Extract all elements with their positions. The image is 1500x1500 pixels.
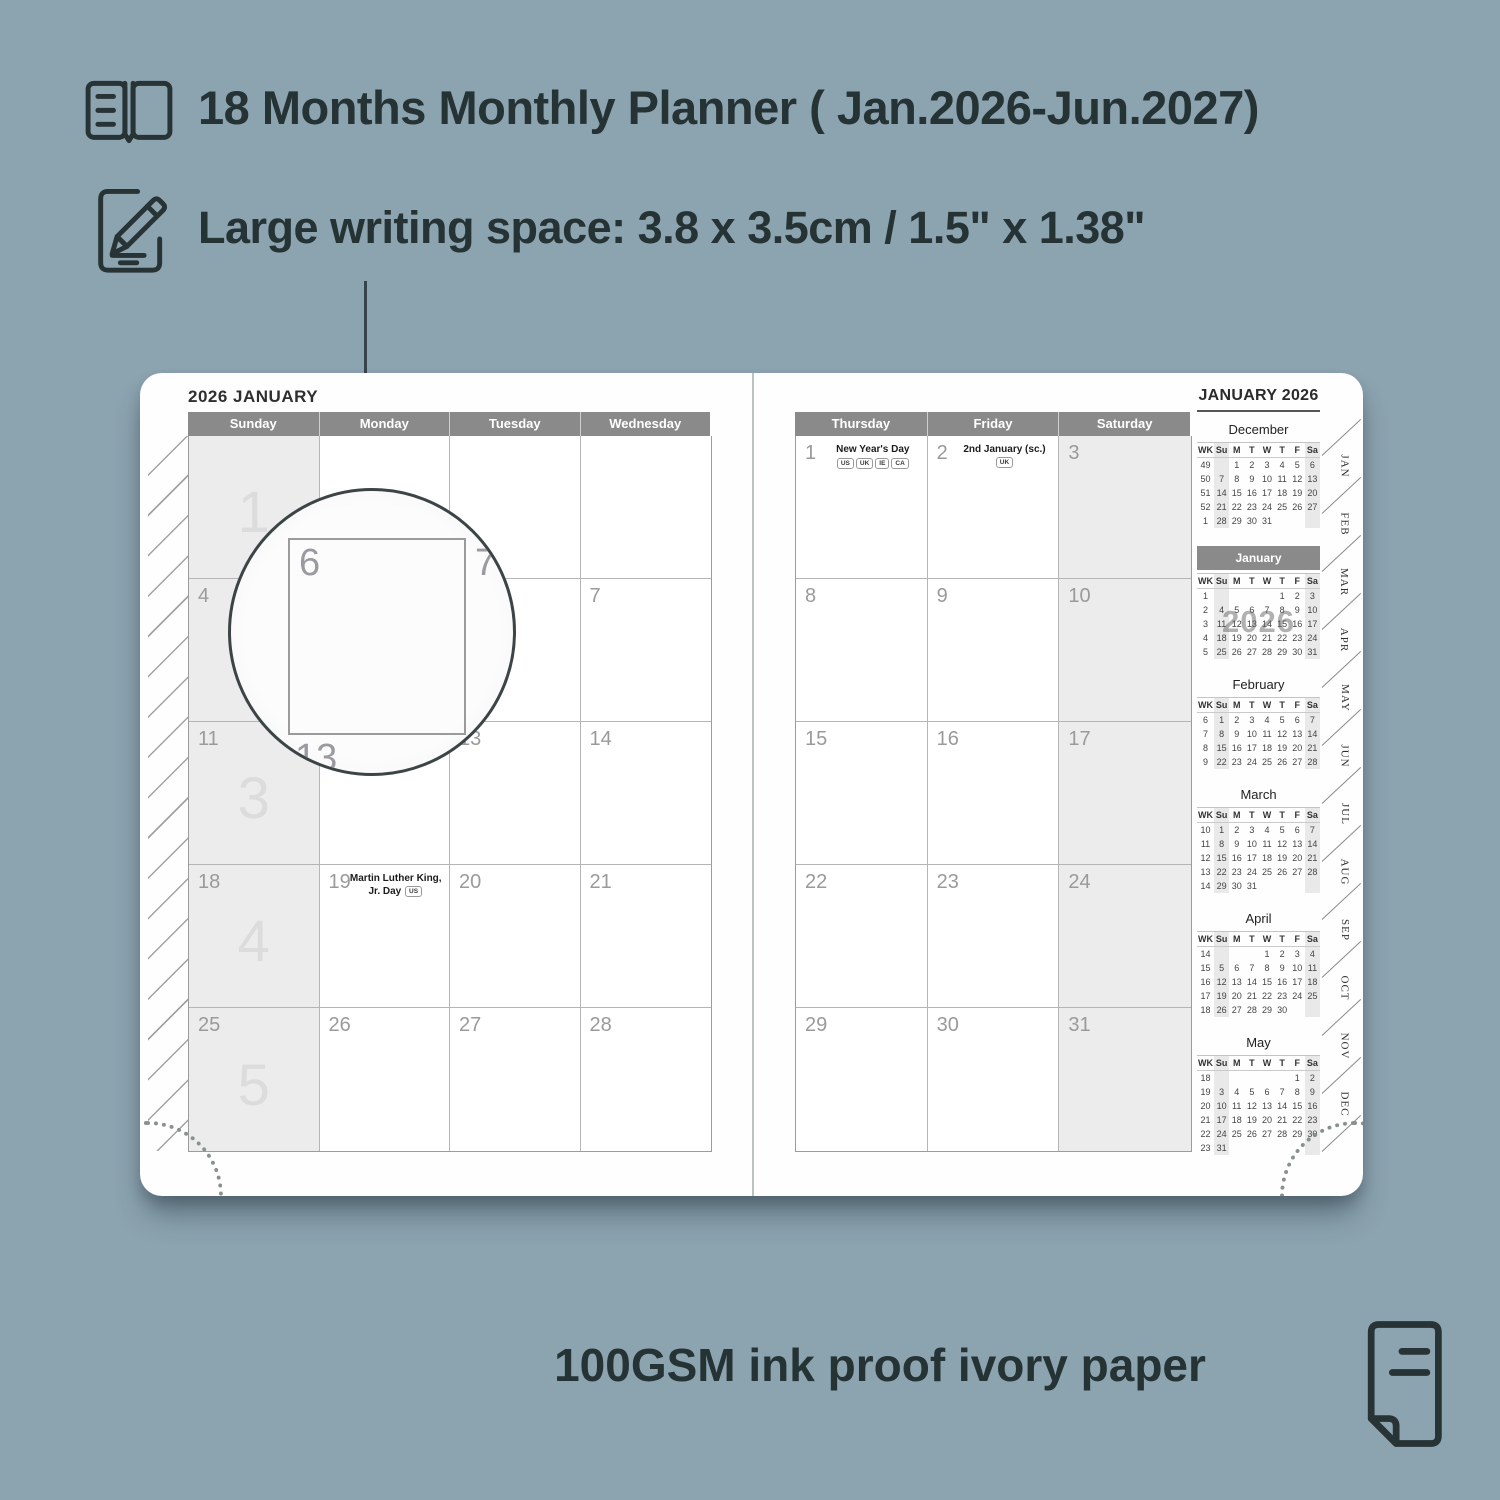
paper-sheet-icon bbox=[1352, 1316, 1448, 1452]
mini-date: 10 bbox=[1244, 727, 1259, 741]
mini-week-row: 2010111213141516 bbox=[1197, 1099, 1320, 1113]
mini-week-number: 9 bbox=[1197, 755, 1214, 769]
mini-date: 24 bbox=[1290, 989, 1305, 1003]
mini-date: 26 bbox=[1275, 865, 1290, 879]
mini-date: 7 bbox=[1305, 823, 1320, 837]
calendar-cell: 3 bbox=[1059, 436, 1191, 579]
mini-date: 29 bbox=[1229, 514, 1244, 528]
mini-weekday: F bbox=[1290, 932, 1305, 946]
mini-date bbox=[1259, 1141, 1274, 1155]
mini-week-number: 52 bbox=[1197, 500, 1214, 514]
mini-week-row: 141234 bbox=[1197, 947, 1320, 961]
mini-date: 16 bbox=[1229, 741, 1244, 755]
paper-fold bbox=[1371, 1419, 1396, 1444]
mini-date: 13 bbox=[1305, 472, 1320, 486]
holiday-badge-row: USUKIECA bbox=[823, 457, 923, 470]
holiday-label: New Year's DayUSUKIECA bbox=[823, 443, 923, 470]
mini-date: 7 bbox=[1244, 961, 1259, 975]
calendar-cell: 14 bbox=[581, 722, 712, 865]
mini-date: 28 bbox=[1305, 755, 1320, 769]
mini-date: 18 bbox=[1305, 975, 1320, 989]
calendar-cell: 20 bbox=[450, 865, 581, 1008]
mini-date: 10 bbox=[1290, 961, 1305, 975]
mini-date: 20 bbox=[1290, 741, 1305, 755]
mini-weekday-header: WKSuMTWTFSa bbox=[1197, 807, 1320, 823]
week-watermark: 5 bbox=[189, 1051, 319, 1118]
country-badge: US bbox=[405, 886, 422, 897]
mini-date: 15 bbox=[1290, 1099, 1305, 1113]
mini-date: 19 bbox=[1214, 989, 1229, 1003]
mini-date: 13 bbox=[1290, 727, 1305, 741]
product-image: { "features": { "months_line": "18 Month… bbox=[0, 0, 1500, 1500]
mini-weekday: W bbox=[1259, 808, 1274, 822]
mini-date: 16 bbox=[1244, 486, 1259, 500]
mini-date: 15 bbox=[1275, 617, 1290, 631]
holiday-title: New Year's Day bbox=[836, 444, 909, 455]
mini-date: 1 bbox=[1214, 713, 1229, 727]
mini-date: 31 bbox=[1244, 879, 1259, 893]
mini-week-row: 128293031 bbox=[1197, 514, 1320, 528]
mini-weekday: T bbox=[1275, 808, 1290, 822]
magnified-date-below: 13 bbox=[295, 737, 337, 776]
feature-paper-text: 100GSM ink proof ivory paper bbox=[430, 1338, 1330, 1392]
mini-date: 11 bbox=[1259, 837, 1274, 851]
mini-week-number: 16 bbox=[1197, 975, 1214, 989]
calendar-cell: 17 bbox=[1059, 722, 1191, 865]
mini-date: 1 bbox=[1275, 589, 1290, 603]
mini-date: 9 bbox=[1290, 603, 1305, 617]
mini-week-row: 49123456 bbox=[1197, 458, 1320, 472]
mini-date: 14 bbox=[1305, 837, 1320, 851]
mini-date: 26 bbox=[1290, 500, 1305, 514]
mini-week-number: 11 bbox=[1197, 837, 1214, 851]
mini-date: 6 bbox=[1244, 603, 1259, 617]
mini-weekday-header: WKSuMTWTFSa bbox=[1197, 573, 1320, 589]
mini-date: 12 bbox=[1214, 975, 1229, 989]
mini-week-row: 418192021222324 bbox=[1197, 631, 1320, 645]
mini-date: 25 bbox=[1259, 755, 1274, 769]
mini-date: 27 bbox=[1244, 645, 1259, 659]
calendar-cell: 31 bbox=[1059, 1008, 1191, 1151]
mini-weekday: M bbox=[1229, 808, 1244, 822]
calendar-cell: 7 bbox=[581, 579, 712, 722]
mini-date: 6 bbox=[1290, 823, 1305, 837]
mini-date: 11 bbox=[1305, 961, 1320, 975]
mini-date: 5 bbox=[1229, 603, 1244, 617]
mini-weekday: WK bbox=[1197, 443, 1214, 457]
mini-date: 13 bbox=[1229, 975, 1244, 989]
mini-week-number: 19 bbox=[1197, 1085, 1214, 1099]
mini-weekday: T bbox=[1244, 1056, 1259, 1070]
mini-date bbox=[1290, 1003, 1305, 1017]
mini-week-row: 5078910111213 bbox=[1197, 472, 1320, 486]
mini-date: 10 bbox=[1244, 837, 1259, 851]
date-number: 15 bbox=[805, 728, 827, 751]
mini-weekday: W bbox=[1259, 443, 1274, 457]
date-number: 14 bbox=[590, 728, 612, 751]
day-header: Wednesday bbox=[580, 412, 711, 436]
country-badge: UK bbox=[856, 458, 873, 469]
mini-week-number: 14 bbox=[1197, 947, 1214, 961]
mini-date: 9 bbox=[1244, 472, 1259, 486]
mini-date: 9 bbox=[1229, 837, 1244, 851]
date-number: 29 bbox=[805, 1014, 827, 1037]
mini-date: 23 bbox=[1244, 500, 1259, 514]
date-number: 9 bbox=[937, 585, 948, 608]
mini-week-row: 1719202122232425 bbox=[1197, 989, 1320, 1003]
mini-weekday: M bbox=[1229, 574, 1244, 588]
mini-date bbox=[1229, 589, 1244, 603]
mini-weekday: Sa bbox=[1305, 1056, 1320, 1070]
mini-calendar-title: May bbox=[1197, 1035, 1320, 1051]
date-number: 7 bbox=[590, 585, 601, 608]
mini-date: 14 bbox=[1275, 1099, 1290, 1113]
date-number: 4 bbox=[198, 585, 209, 608]
mini-date: 9 bbox=[1305, 1085, 1320, 1099]
mini-date: 4 bbox=[1305, 947, 1320, 961]
mini-date: 13 bbox=[1290, 837, 1305, 851]
mini-week-number: 15 bbox=[1197, 961, 1214, 975]
magnified-date: 6 bbox=[299, 542, 320, 585]
mini-week-number: 22 bbox=[1197, 1127, 1214, 1141]
mini-weekday: T bbox=[1275, 1056, 1290, 1070]
tab-label-text: FEB bbox=[1339, 512, 1351, 535]
mini-weekday: T bbox=[1244, 932, 1259, 946]
mini-date: 6 bbox=[1305, 458, 1320, 472]
holiday-title: Martin Luther King, Jr. Day bbox=[350, 873, 442, 897]
mini-date: 19 bbox=[1275, 851, 1290, 865]
mini-weekday: T bbox=[1275, 443, 1290, 457]
mini-date: 21 bbox=[1305, 741, 1320, 755]
mini-weekday: W bbox=[1259, 932, 1274, 946]
mini-date: 25 bbox=[1275, 500, 1290, 514]
mini-date: 23 bbox=[1229, 755, 1244, 769]
date-number: 2 bbox=[937, 442, 948, 465]
mini-date: 25 bbox=[1214, 645, 1229, 659]
calendar-cell: 24 bbox=[1059, 865, 1191, 1008]
mini-date: 16 bbox=[1290, 617, 1305, 631]
calendar-cell bbox=[581, 436, 712, 579]
mini-calendar-sidebar: JANUARY 2026 DecemberWKSuMTWTFSa49123456… bbox=[1197, 387, 1320, 1155]
mini-date: 6 bbox=[1229, 961, 1244, 975]
mini-week-row: 7891011121314 bbox=[1197, 727, 1320, 741]
mini-date: 21 bbox=[1275, 1113, 1290, 1127]
left-page-month-title: 2026 JANUARY bbox=[188, 387, 318, 407]
mini-date: 7 bbox=[1275, 1085, 1290, 1099]
date-number: 18 bbox=[198, 871, 220, 894]
mini-date: 3 bbox=[1244, 823, 1259, 837]
mini-date bbox=[1229, 1141, 1244, 1155]
calendar-cell: 27 bbox=[450, 1008, 581, 1151]
mini-date: 19 bbox=[1229, 631, 1244, 645]
mini-date: 16 bbox=[1305, 1099, 1320, 1113]
week-watermark: 4 bbox=[189, 908, 319, 975]
tab-label-text: APR bbox=[1339, 628, 1351, 652]
mini-date: 30 bbox=[1229, 879, 1244, 893]
mini-week-row: 182627282930 bbox=[1197, 1003, 1320, 1017]
date-number: 30 bbox=[937, 1014, 959, 1037]
mini-date: 1 bbox=[1214, 823, 1229, 837]
mini-calendar: AprilWKSuMTWTFSa141234155678910111612131… bbox=[1197, 911, 1320, 1017]
calendar-cell: 22nd January (sc.) UK bbox=[928, 436, 1060, 579]
mini-weekday: Sa bbox=[1305, 698, 1320, 712]
sidebar-month-title: JANUARY 2026 bbox=[1197, 387, 1320, 412]
mini-weekday: Sa bbox=[1305, 443, 1320, 457]
mini-date: 3 bbox=[1214, 1085, 1229, 1099]
page-seam bbox=[752, 373, 754, 1196]
mini-date: 27 bbox=[1290, 755, 1305, 769]
mini-date: 3 bbox=[1290, 947, 1305, 961]
mini-calendar-title: December bbox=[1197, 422, 1320, 438]
mini-week-number: 10 bbox=[1197, 823, 1214, 837]
mini-date: 13 bbox=[1259, 1099, 1274, 1113]
right-month-grid: 1New Year's DayUSUKIECA22nd January (sc.… bbox=[795, 436, 1192, 1152]
mini-week-number: 14 bbox=[1197, 879, 1214, 893]
mini-date bbox=[1290, 879, 1305, 893]
mini-date: 24 bbox=[1214, 1127, 1229, 1141]
mini-date bbox=[1275, 1141, 1290, 1155]
mini-weekday: Sa bbox=[1305, 932, 1320, 946]
mini-date: 22 bbox=[1290, 1113, 1305, 1127]
mini-date: 20 bbox=[1305, 486, 1320, 500]
mini-weekday: W bbox=[1259, 574, 1274, 588]
tab-label-text: SEP bbox=[1339, 919, 1351, 941]
mini-weekday: T bbox=[1275, 574, 1290, 588]
mini-date: 17 bbox=[1290, 975, 1305, 989]
date-number: 20 bbox=[459, 871, 481, 894]
mini-weekday: WK bbox=[1197, 698, 1214, 712]
mini-date: 24 bbox=[1259, 500, 1274, 514]
calendar-cell: 8 bbox=[796, 579, 928, 722]
mini-date: 28 bbox=[1259, 645, 1274, 659]
mini-date: 30 bbox=[1290, 645, 1305, 659]
mini-calendar-title: April bbox=[1197, 911, 1320, 927]
mini-weekday: WK bbox=[1197, 574, 1214, 588]
mini-date: 7 bbox=[1214, 472, 1229, 486]
date-number: 17 bbox=[1068, 728, 1090, 751]
mini-date: 2 bbox=[1229, 713, 1244, 727]
country-badge: US bbox=[837, 458, 854, 469]
mini-date: 15 bbox=[1229, 486, 1244, 500]
mini-calendar-title: January bbox=[1197, 546, 1320, 570]
mini-date: 6 bbox=[1259, 1085, 1274, 1099]
mini-date: 8 bbox=[1214, 837, 1229, 851]
mini-weekday: T bbox=[1244, 808, 1259, 822]
calendar-cell: 525 bbox=[189, 1008, 320, 1151]
mini-date: 11 bbox=[1259, 727, 1274, 741]
mini-date: 10 bbox=[1259, 472, 1274, 486]
mini-date: 17 bbox=[1214, 1113, 1229, 1127]
mini-weekday: F bbox=[1290, 808, 1305, 822]
mini-date: 2 bbox=[1244, 458, 1259, 472]
mini-weekday: M bbox=[1229, 932, 1244, 946]
mini-week-row: 1123 bbox=[1197, 589, 1320, 603]
mini-date: 19 bbox=[1290, 486, 1305, 500]
mini-week-row: 922232425262728 bbox=[1197, 755, 1320, 769]
mini-date: 28 bbox=[1275, 1127, 1290, 1141]
mini-week-number: 18 bbox=[1197, 1071, 1214, 1085]
mini-week-row: 5114151617181920 bbox=[1197, 486, 1320, 500]
mini-date: 8 bbox=[1229, 472, 1244, 486]
mini-week-number: 50 bbox=[1197, 472, 1214, 486]
mini-date: 1 bbox=[1290, 1071, 1305, 1085]
mini-date: 14 bbox=[1244, 975, 1259, 989]
mini-date bbox=[1305, 514, 1320, 528]
mini-date: 8 bbox=[1290, 1085, 1305, 1099]
mini-week-number: 49 bbox=[1197, 458, 1214, 472]
day-header: Tuesday bbox=[449, 412, 580, 436]
mini-weekday: T bbox=[1275, 698, 1290, 712]
mini-date: 5 bbox=[1214, 961, 1229, 975]
left-day-header-row: SundayMondayTuesdayWednesday bbox=[188, 412, 710, 436]
mini-weekday: F bbox=[1290, 574, 1305, 588]
mini-weekday: WK bbox=[1197, 932, 1214, 946]
date-number: 24 bbox=[1068, 871, 1090, 894]
mini-date: 22 bbox=[1259, 989, 1274, 1003]
mini-week-number: 17 bbox=[1197, 989, 1214, 1003]
mini-date: 29 bbox=[1214, 879, 1229, 893]
mini-date: 23 bbox=[1229, 865, 1244, 879]
mini-week-row: 101234567 bbox=[1197, 823, 1320, 837]
mini-date bbox=[1275, 879, 1290, 893]
calendar-cell: 15 bbox=[796, 722, 928, 865]
mini-week-row: 1812 bbox=[1197, 1071, 1320, 1085]
mini-calendar: FebruaryWKSuMTWTFSa612345677891011121314… bbox=[1197, 677, 1320, 769]
calendar-cell: 21 bbox=[581, 865, 712, 1008]
calendar-cell: 16 bbox=[928, 722, 1060, 865]
date-number: 26 bbox=[329, 1014, 351, 1037]
mini-date: 12 bbox=[1275, 727, 1290, 741]
mini-date bbox=[1244, 947, 1259, 961]
calendar-cell: 23 bbox=[928, 865, 1060, 1008]
mini-date: 4 bbox=[1275, 458, 1290, 472]
calendar-cell: 22 bbox=[796, 865, 928, 1008]
week-watermark: 3 bbox=[189, 765, 319, 832]
tab-label-text: NOV bbox=[1339, 1033, 1351, 1060]
feature-months-text: 18 Months Monthly Planner ( Jan.2026-Jun… bbox=[198, 80, 1259, 135]
mini-date: 5 bbox=[1244, 1085, 1259, 1099]
mini-date: 26 bbox=[1275, 755, 1290, 769]
mini-weekday: WK bbox=[1197, 808, 1214, 822]
country-badge: UK bbox=[996, 457, 1013, 468]
mini-weekday: W bbox=[1259, 1056, 1274, 1070]
mini-date: 27 bbox=[1305, 500, 1320, 514]
calendar-cell: 13 bbox=[450, 722, 581, 865]
mini-date: 23 bbox=[1275, 989, 1290, 1003]
country-badge: IE bbox=[875, 458, 889, 469]
holiday-label: Martin Luther King, Jr. Day US bbox=[347, 872, 446, 898]
mini-calendar: MayWKSuMTWTFSa18121934567892010111213141… bbox=[1197, 1035, 1320, 1155]
calendar-cell: 9 bbox=[928, 579, 1060, 722]
mini-date: 11 bbox=[1214, 617, 1229, 631]
mini-date: 10 bbox=[1214, 1099, 1229, 1113]
mini-date bbox=[1290, 514, 1305, 528]
tab-label-text: AUG bbox=[1339, 859, 1351, 886]
mini-date: 12 bbox=[1275, 837, 1290, 851]
mini-week-number: 4 bbox=[1197, 631, 1214, 645]
mini-date: 26 bbox=[1229, 645, 1244, 659]
mini-date: 20 bbox=[1244, 631, 1259, 645]
mini-date: 27 bbox=[1259, 1127, 1274, 1141]
mini-weekday: Su bbox=[1214, 574, 1229, 588]
mini-calendar: JanuaryWKSuMTWTFSa1123245678910311121314… bbox=[1197, 546, 1320, 659]
mini-date: 21 bbox=[1305, 851, 1320, 865]
mini-date: 24 bbox=[1244, 865, 1259, 879]
mini-week-row: 1322232425262728 bbox=[1197, 865, 1320, 879]
mini-week-number: 8 bbox=[1197, 741, 1214, 755]
mini-week-number: 5 bbox=[1197, 645, 1214, 659]
mini-week-row: 14293031 bbox=[1197, 879, 1320, 893]
pencil-note-icon bbox=[90, 180, 172, 280]
left-edge-hatching bbox=[148, 436, 188, 1151]
mini-week-number: 51 bbox=[1197, 486, 1214, 500]
mini-date: 9 bbox=[1275, 961, 1290, 975]
mini-date bbox=[1244, 1071, 1259, 1085]
mini-date: 24 bbox=[1244, 755, 1259, 769]
tab-label-text: DEC bbox=[1339, 1092, 1351, 1117]
mini-weekday: F bbox=[1290, 698, 1305, 712]
mini-date: 27 bbox=[1229, 1003, 1244, 1017]
mini-date: 23 bbox=[1305, 1113, 1320, 1127]
mini-date: 16 bbox=[1275, 975, 1290, 989]
calendar-cell: 10 bbox=[1059, 579, 1191, 722]
mini-calendar: MarchWKSuMTWTFSa101234567118910111213141… bbox=[1197, 787, 1320, 893]
mini-weekday-header: WKSuMTWTFSa bbox=[1197, 442, 1320, 458]
mini-date: 3 bbox=[1305, 589, 1320, 603]
mini-calendar: DecemberWKSuMTWTFSa491234565078910111213… bbox=[1197, 422, 1320, 528]
calendar-cell: 19Martin Luther King, Jr. Day US bbox=[320, 865, 451, 1008]
mini-date: 5 bbox=[1275, 823, 1290, 837]
mini-date bbox=[1259, 1071, 1274, 1085]
mini-date bbox=[1229, 1071, 1244, 1085]
mini-calendar-title: February bbox=[1197, 677, 1320, 693]
mini-week-row: 15567891011 bbox=[1197, 961, 1320, 975]
mini-date: 17 bbox=[1259, 486, 1274, 500]
mini-date: 25 bbox=[1305, 989, 1320, 1003]
mini-date: 25 bbox=[1259, 865, 1274, 879]
day-header: Sunday bbox=[188, 412, 319, 436]
mini-date bbox=[1275, 1071, 1290, 1085]
mini-date: 31 bbox=[1259, 514, 1274, 528]
holiday-label: 2nd January (sc.) UK bbox=[955, 443, 1055, 469]
mini-date: 8 bbox=[1275, 603, 1290, 617]
mini-date: 17 bbox=[1244, 851, 1259, 865]
mini-date: 22 bbox=[1214, 865, 1229, 879]
mini-week-number: 21 bbox=[1197, 1113, 1214, 1127]
mini-date: 31 bbox=[1305, 645, 1320, 659]
mini-date: 17 bbox=[1305, 617, 1320, 631]
mini-weekday: Su bbox=[1214, 932, 1229, 946]
mini-weekday: WK bbox=[1197, 1056, 1214, 1070]
date-number: 25 bbox=[198, 1014, 220, 1037]
mini-date: 27 bbox=[1290, 865, 1305, 879]
mini-date: 30 bbox=[1275, 1003, 1290, 1017]
mini-week-row: 815161718192021 bbox=[1197, 741, 1320, 755]
mini-date: 26 bbox=[1214, 1003, 1229, 1017]
tab-label-text: JUN bbox=[1338, 744, 1350, 767]
mini-date: 22 bbox=[1214, 755, 1229, 769]
mini-date bbox=[1229, 947, 1244, 961]
mini-date: 17 bbox=[1244, 741, 1259, 755]
calendar-cell: 418 bbox=[189, 865, 320, 1008]
mini-week-number: 7 bbox=[1197, 727, 1214, 741]
date-number: 21 bbox=[590, 871, 612, 894]
mini-date: 30 bbox=[1244, 514, 1259, 528]
mini-date: 15 bbox=[1214, 741, 1229, 755]
mini-week-row: 311121314151617 bbox=[1197, 617, 1320, 631]
country-badge: CA bbox=[891, 458, 908, 469]
mini-date bbox=[1214, 458, 1229, 472]
